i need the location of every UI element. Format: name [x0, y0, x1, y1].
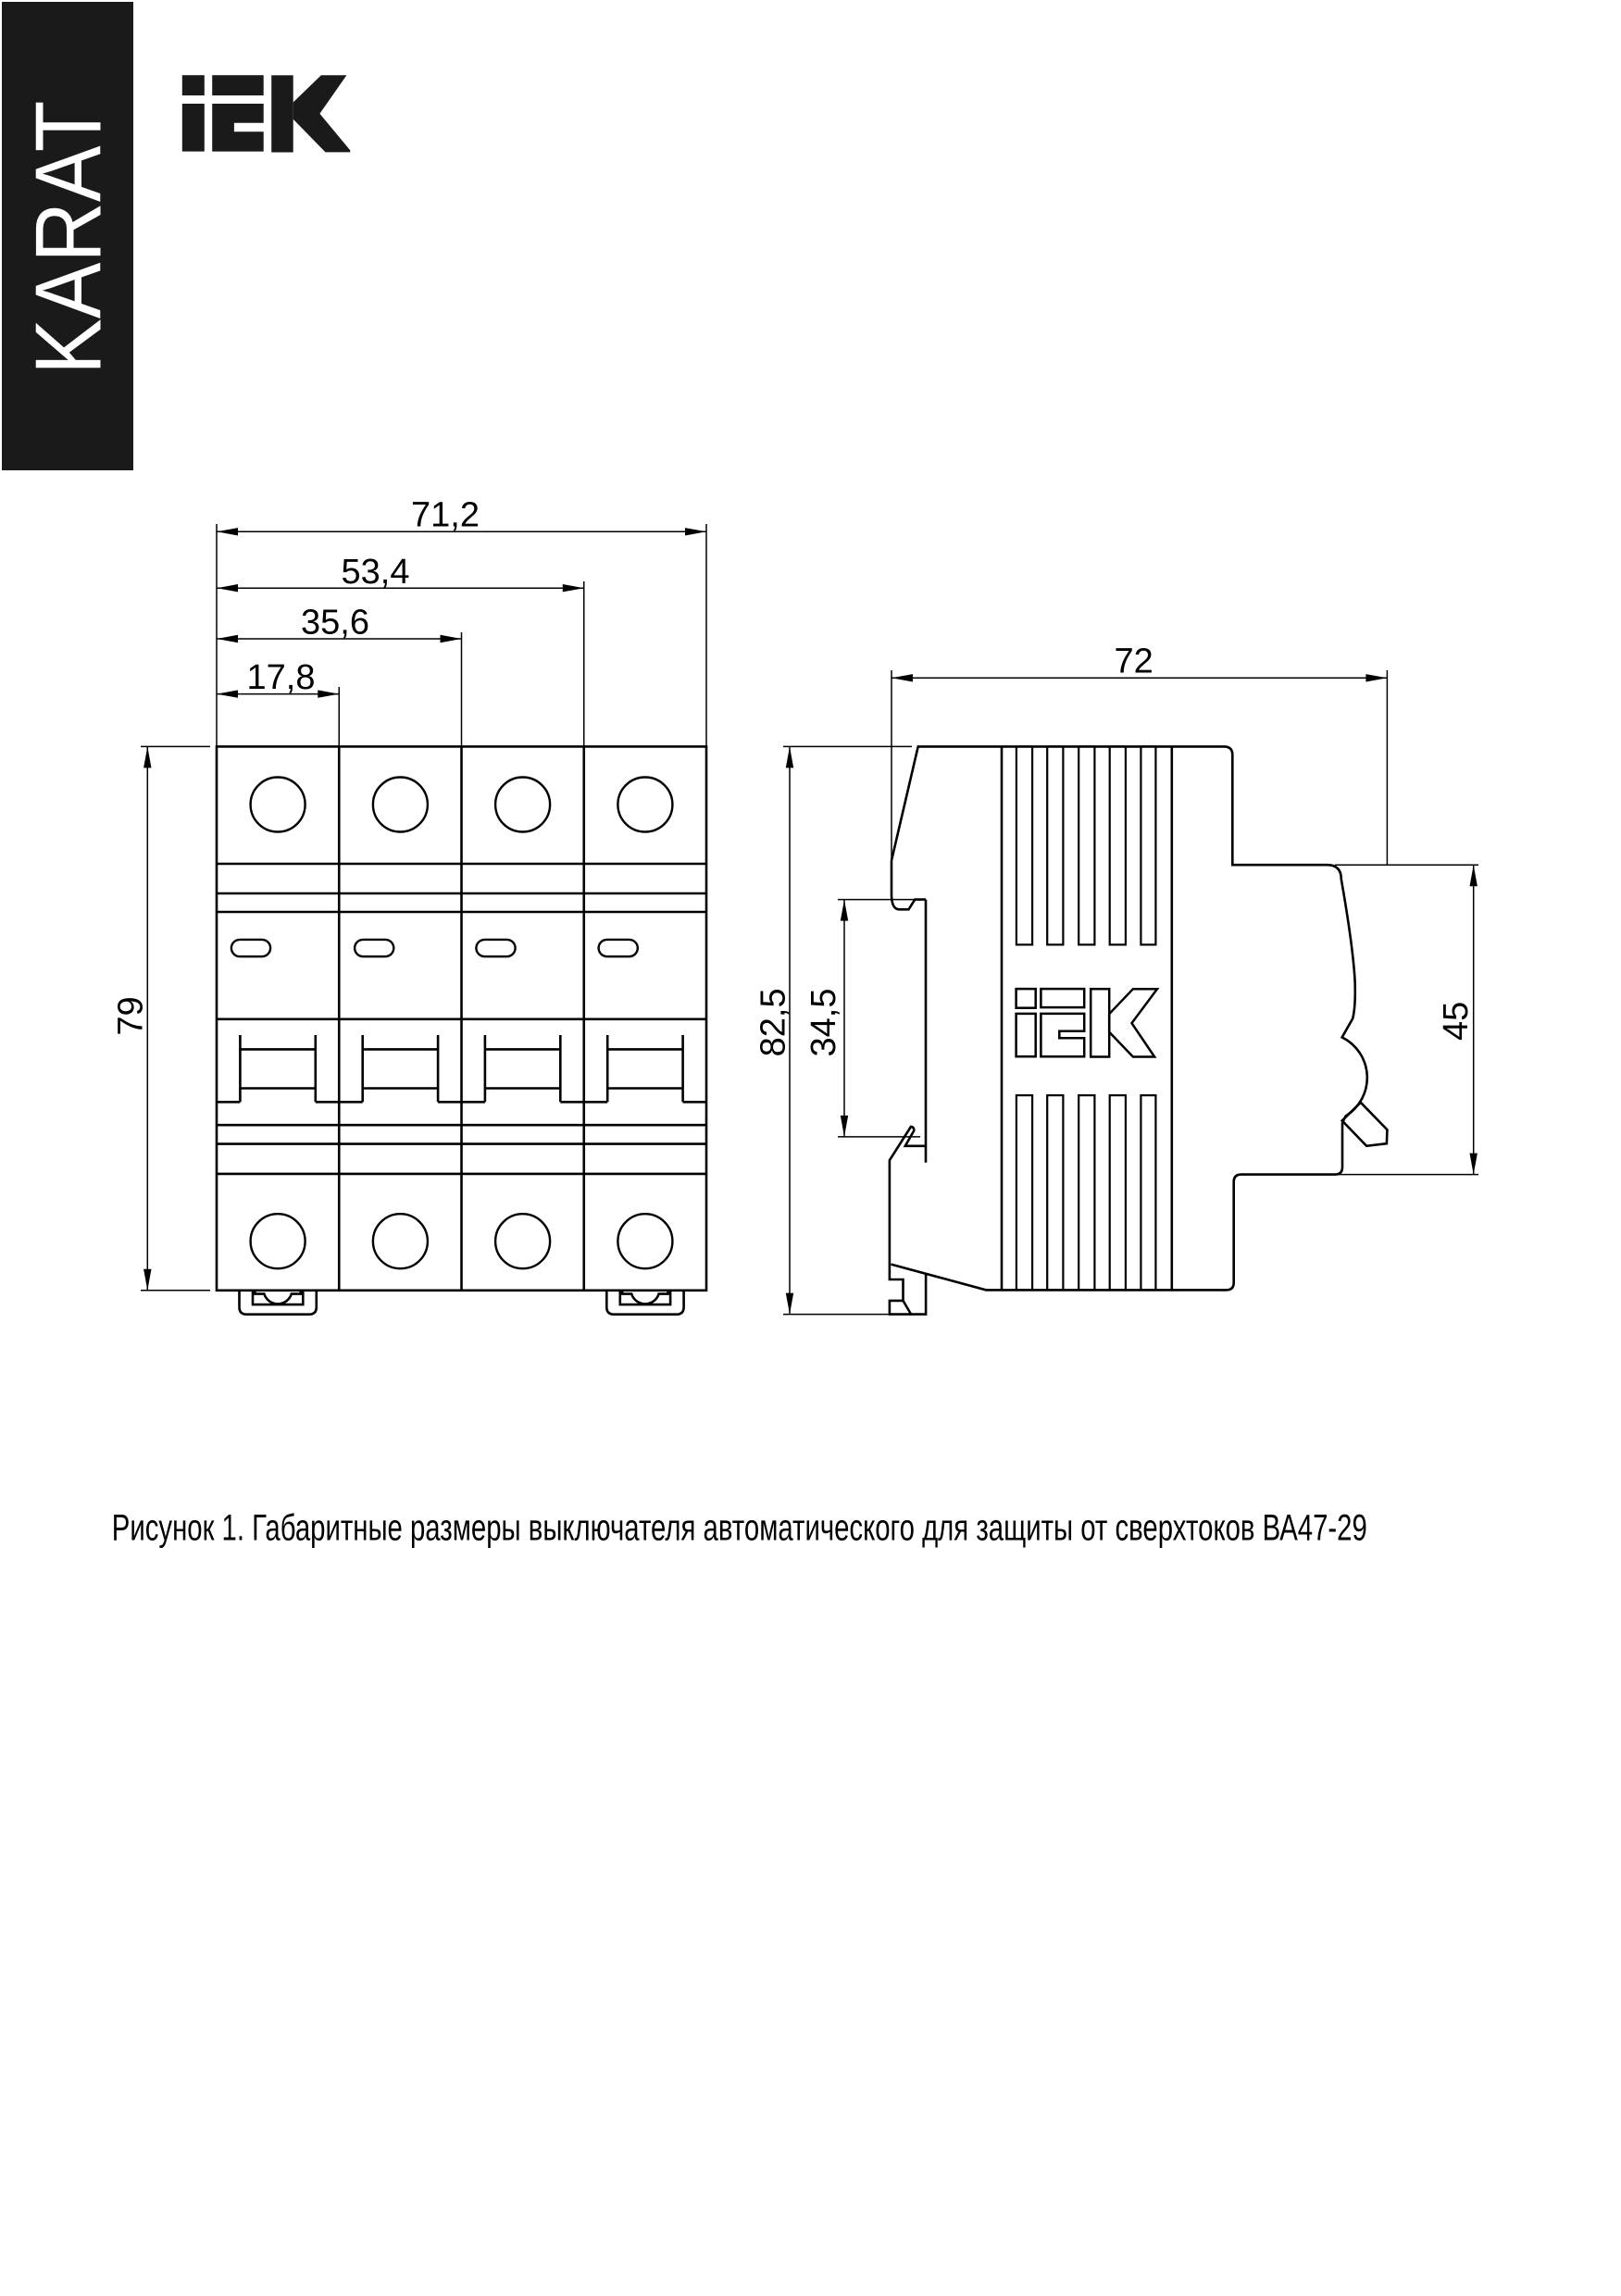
svg-text:72: 72 [1115, 643, 1153, 681]
svg-text:82,5: 82,5 [754, 988, 793, 1056]
svg-text:34,5: 34,5 [804, 989, 843, 1057]
svg-text:45: 45 [1437, 1002, 1476, 1041]
svg-text:79: 79 [112, 996, 151, 1035]
svg-text:53,4: 53,4 [342, 553, 410, 592]
svg-text:KARAT: KARAT [18, 101, 121, 375]
svg-text:17,8: 17,8 [247, 658, 316, 697]
svg-text:71,2: 71,2 [411, 496, 480, 535]
svg-text:35,6: 35,6 [301, 604, 369, 643]
svg-text:Рисунок 1. Габаритные размеры: Рисунок 1. Габаритные размеры выключател… [112, 1508, 1367, 1549]
